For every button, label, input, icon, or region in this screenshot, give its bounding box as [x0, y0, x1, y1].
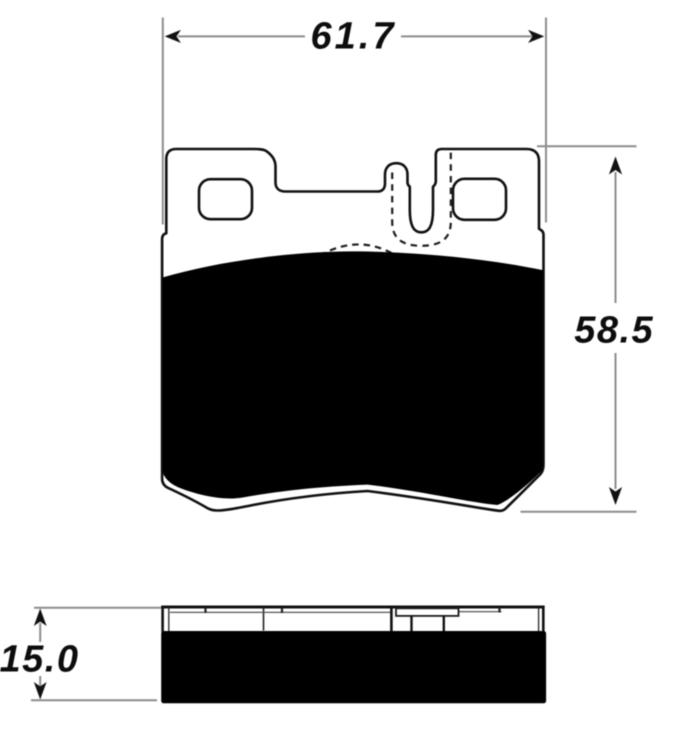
- svg-text:58.5: 58.5: [574, 310, 654, 352]
- svg-text:15.0: 15.0: [0, 639, 79, 681]
- svg-text:61.7: 61.7: [311, 15, 397, 57]
